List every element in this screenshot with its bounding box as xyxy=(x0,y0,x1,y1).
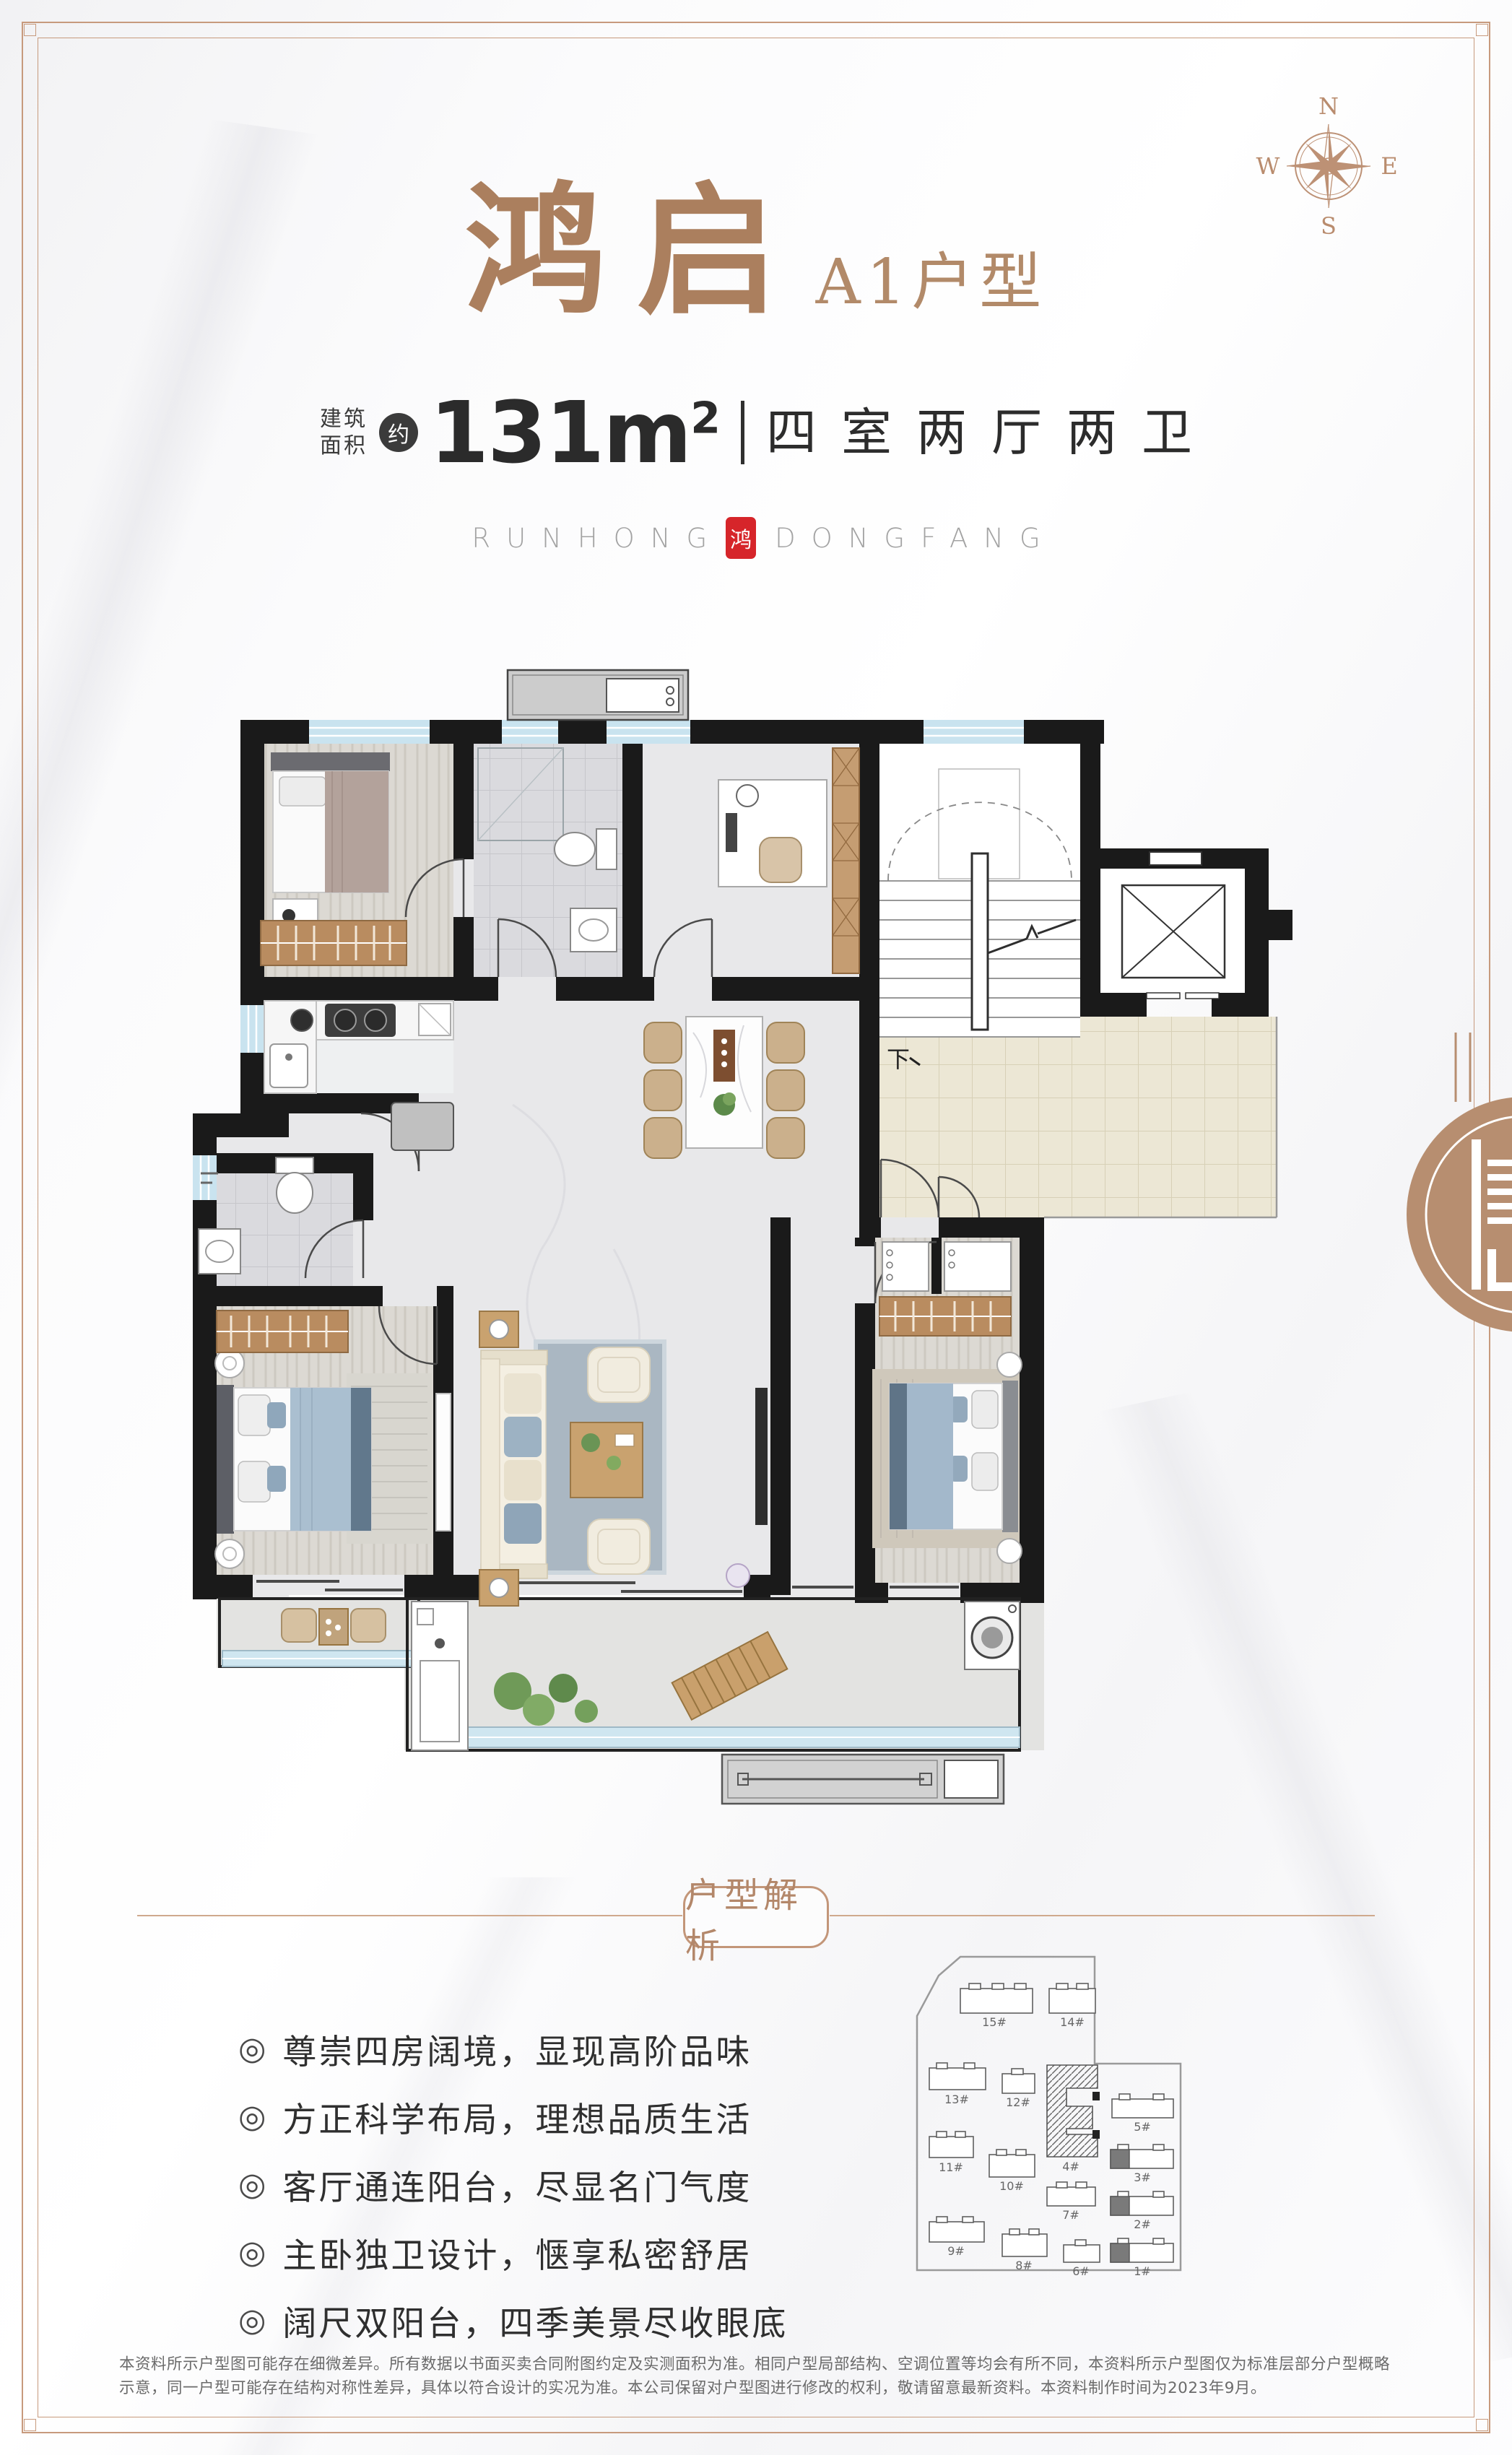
list-item: ◎阔尺双阳台，四季美景尽收眼底 xyxy=(238,2286,788,2354)
svg-text:5#: 5# xyxy=(1134,2120,1151,2134)
bullet-icon: ◎ xyxy=(238,2234,268,2271)
divider-line xyxy=(137,1915,682,1916)
drying-rack-platform xyxy=(722,1755,1004,1804)
svg-text:11#: 11# xyxy=(939,2160,963,2174)
bullet-icon: ◎ xyxy=(238,2098,268,2135)
bedroom-secondary-2 xyxy=(872,1242,1022,1563)
building-4-hatched xyxy=(1047,2065,1098,2157)
divider xyxy=(741,401,744,464)
site-plan: 15# 14# 13# 12# 4# 5# 11# 10# 3# 7# 2# 9… xyxy=(899,1944,1209,2280)
svg-text:9#: 9# xyxy=(947,2244,965,2258)
disclaimer-text: 本资料所示户型图可能存在细微差异。所有数据以书面买卖合同附图约定及实测面积为准。… xyxy=(119,2352,1396,2401)
compass-w: W xyxy=(1256,152,1280,180)
area-value: 131m2 xyxy=(430,390,719,475)
brand-medallion-icon xyxy=(1396,1033,1512,1350)
list-item: ◎客厅通连阳台，尽显名门气度 xyxy=(238,2150,788,2218)
svg-text:6#: 6# xyxy=(1072,2264,1090,2278)
elevator xyxy=(1100,852,1245,999)
list-item: ◎主卧独卫设计，惬享私密舒居 xyxy=(238,2218,788,2286)
svg-text:3#: 3# xyxy=(1134,2171,1151,2184)
title-row: 鸿启 A1户型 xyxy=(0,181,1512,322)
svg-text:4#: 4# xyxy=(1062,2160,1079,2173)
highlighted-units xyxy=(1111,2150,1129,2262)
stairs-down-label: 下 xyxy=(887,1046,910,1073)
list-item: ◎尊崇四房阔境，显现高阶品味 xyxy=(238,2015,788,2082)
area-spec-row: 建筑面积 约 131m2 四室两厅两卫 xyxy=(0,390,1512,475)
page-title: 鸿启 xyxy=(465,181,809,322)
divider-line xyxy=(830,1915,1375,1916)
water-heater xyxy=(391,1103,453,1150)
brand-row: RUNHONG 鸿 DONGFANG xyxy=(0,517,1512,559)
area-label: 建筑面积 xyxy=(320,406,368,460)
bedroom-secondary-1 xyxy=(261,752,407,965)
feature-list: ◎尊崇四房阔境，显现高阶品味 ◎方正科学布局，理想品质生活 ◎客厅通连阳台，尽显… xyxy=(238,2015,788,2354)
svg-text:14#: 14# xyxy=(1060,2015,1085,2029)
bullet-icon: ◎ xyxy=(238,2030,268,2067)
svg-text:8#: 8# xyxy=(1015,2259,1033,2272)
floor-plan: 下 xyxy=(108,599,1350,1827)
balcony-master xyxy=(282,1609,386,1645)
room-layout-text: 四室两厅两卫 xyxy=(766,407,1217,458)
compass-e: E xyxy=(1381,152,1397,180)
svg-text:10#: 10# xyxy=(999,2179,1024,2193)
frame-corner-icon xyxy=(1476,2419,1488,2431)
compass-n: N xyxy=(1318,92,1339,120)
bullet-icon: ◎ xyxy=(238,2302,268,2339)
approx-badge: 约 xyxy=(379,413,418,452)
svg-text:2#: 2# xyxy=(1134,2217,1151,2231)
section-badge: 户型解析 xyxy=(683,1886,829,1948)
list-item: ◎方正科学布局，理想品质生活 xyxy=(238,2082,788,2150)
ac-platform-top xyxy=(508,670,688,720)
frame-corner-icon xyxy=(1476,24,1488,36)
brand-word-left: RUNHONG xyxy=(472,523,723,554)
svg-text:12#: 12# xyxy=(1006,2095,1030,2109)
svg-text:13#: 13# xyxy=(944,2093,969,2106)
dining-area xyxy=(644,1017,804,1158)
bullet-icon: ◎ xyxy=(238,2166,268,2203)
frame-corner-icon xyxy=(24,2419,36,2431)
poster-page: N E S W 鸿启 A1户型 建筑面积 约 131m2 四室两厅两卫 RUNH… xyxy=(0,0,1512,2455)
frame-corner-icon xyxy=(24,24,36,36)
brand-word-right: DONGFANG xyxy=(775,523,1056,554)
svg-text:15#: 15# xyxy=(982,2015,1007,2029)
brand-seal-icon: 鸿 xyxy=(726,517,756,559)
svg-text:1#: 1# xyxy=(1134,2264,1151,2278)
unit-type-label: A1户型 xyxy=(816,250,1048,322)
svg-text:7#: 7# xyxy=(1062,2208,1079,2222)
